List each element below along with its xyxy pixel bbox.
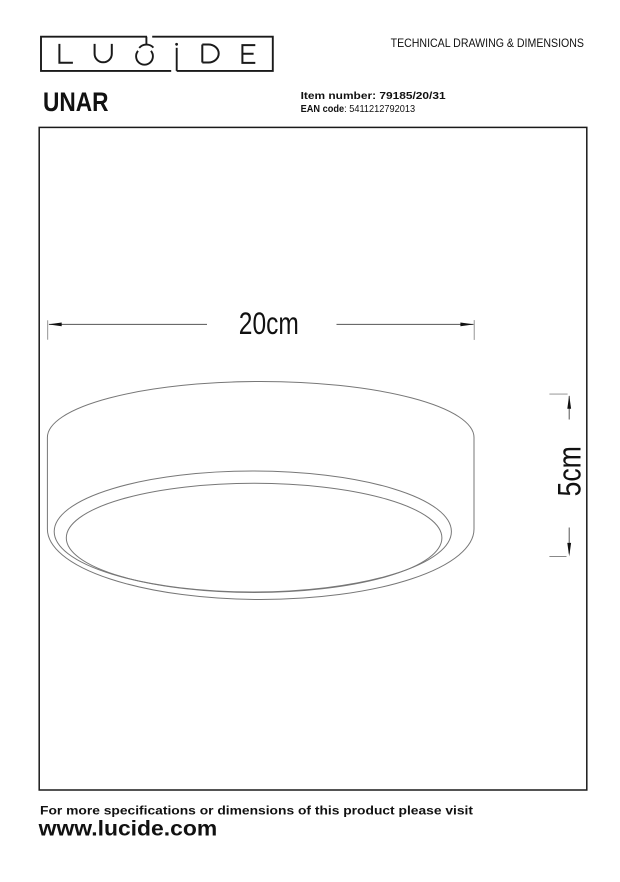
svg-text:For more specifications or dim: For more specifications or dimensions of… [40,804,473,818]
svg-text:TECHNICAL DRAWING & DIMENSIONS: TECHNICAL DRAWING & DIMENSIONS [391,36,585,50]
svg-text:www.lucide.com: www.lucide.com [38,817,218,840]
svg-text:Item number: 79185/20/31: Item number: 79185/20/31 [301,91,446,102]
svg-text:UNAR: UNAR [43,86,109,117]
svg-text:5cm: 5cm [552,446,588,497]
svg-text:EAN code: 5411212792013: EAN code: 5411212792013 [301,104,416,115]
svg-text:20cm: 20cm [239,305,299,341]
